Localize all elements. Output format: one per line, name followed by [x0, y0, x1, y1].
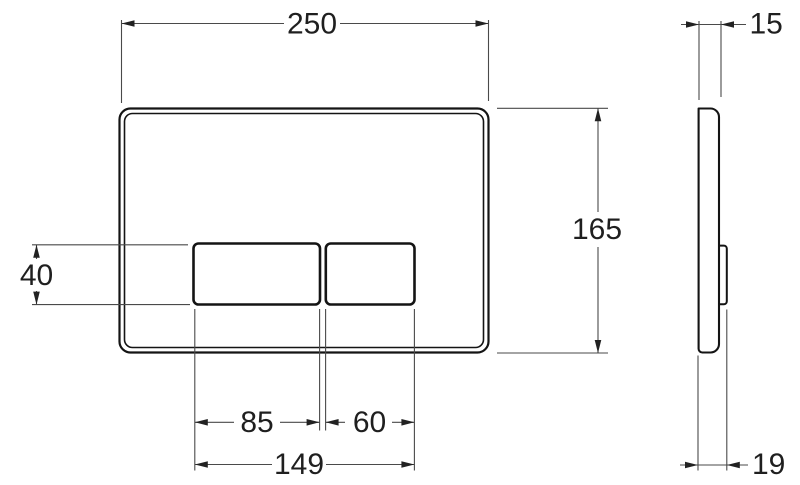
small-button-width-label: 60	[353, 406, 386, 439]
arrowhead-inward-right	[686, 21, 699, 28]
side-view	[699, 109, 727, 353]
buttons-overall-width-label: 149	[274, 448, 324, 481]
dimension-plate-height: 165	[497, 108, 622, 353]
button-height-label: 40	[20, 259, 53, 292]
arrowhead-right	[476, 20, 489, 27]
arrowhead-left	[326, 419, 339, 426]
overall-depth-label: 19	[752, 448, 785, 481]
extension-lines	[32, 245, 190, 305]
arrowhead-inward-right	[685, 462, 698, 469]
arrowhead-down	[33, 292, 40, 305]
dimension-plate-width: 250	[122, 8, 489, 104]
arrowhead-up	[33, 245, 40, 258]
plate-thickness-label: 15	[750, 8, 783, 41]
small-flush-button	[326, 244, 415, 305]
arrowhead-inward-left	[721, 21, 734, 28]
extension-lines	[699, 21, 721, 100]
plate-outer-outline	[120, 109, 489, 353]
arrowhead-down	[595, 340, 602, 353]
dimension-plate-thickness: 15	[681, 8, 783, 101]
large-button-width-label: 85	[240, 406, 273, 439]
dimension-overall-depth: 19	[680, 310, 785, 482]
extension-lines	[698, 310, 727, 471]
large-flush-button	[194, 244, 321, 305]
dimension-button-height: 40	[20, 245, 190, 305]
arrowhead-right	[401, 419, 414, 426]
button-extension-lines	[195, 309, 415, 471]
plate-height-label: 165	[572, 213, 622, 246]
arrowhead-left	[195, 419, 208, 426]
technical-drawing: 250 165 15 40 85 60	[0, 0, 800, 485]
arrowhead-up	[595, 108, 602, 121]
arrowhead-right	[307, 419, 320, 426]
arrowhead-left	[195, 461, 208, 468]
plate-width-label: 250	[287, 8, 337, 41]
dimension-buttons-overall-width: 149	[195, 448, 415, 481]
arrowhead-right	[401, 461, 414, 468]
plate-inner-outline	[125, 114, 484, 348]
arrowhead-left	[122, 20, 135, 27]
dimension-large-button-width: 85	[195, 406, 320, 439]
arrowhead-inward-left	[727, 462, 740, 469]
side-profile	[699, 109, 719, 353]
drawing-canvas: 250 165 15 40 85 60	[0, 0, 800, 485]
front-view	[120, 109, 489, 353]
side-button-profile	[719, 246, 727, 305]
dimension-small-button-width: 60	[326, 406, 415, 439]
